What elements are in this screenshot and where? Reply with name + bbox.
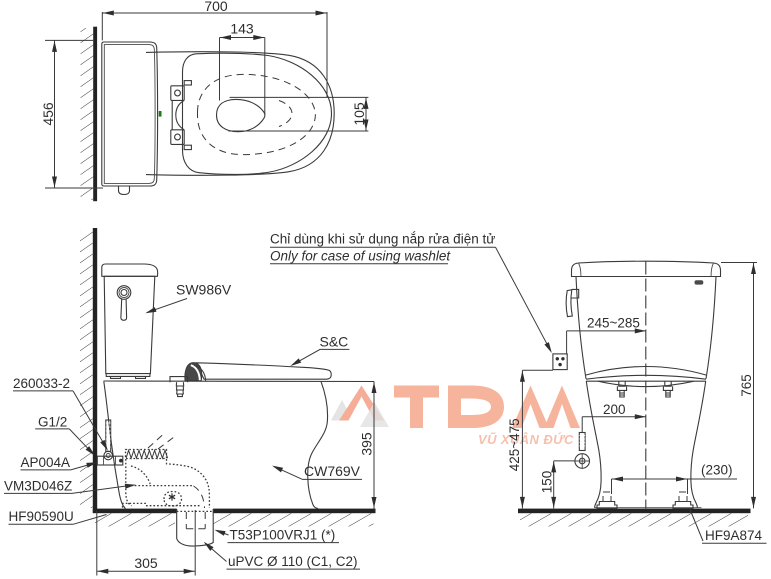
svg-text:245~285: 245~285 — [587, 316, 640, 331]
svg-text:Chỉ dùng khi sử dụng nắp rửa đ: Chỉ dùng khi sử dụng nắp rửa điện tử — [270, 232, 495, 247]
svg-text:395: 395 — [359, 432, 375, 456]
svg-text:150: 150 — [540, 471, 555, 494]
svg-text:425~475: 425~475 — [507, 418, 522, 471]
svg-text:105: 105 — [351, 102, 367, 126]
svg-text:200: 200 — [603, 402, 626, 417]
svg-text:G1/2: G1/2 — [38, 414, 67, 429]
svg-text:T53P100VRJ1 (*): T53P100VRJ1 (*) — [230, 528, 336, 543]
svg-text:VM3D046Z: VM3D046Z — [4, 478, 72, 493]
svg-text:SW986V: SW986V — [176, 282, 232, 298]
svg-text:HF9A874: HF9A874 — [705, 528, 763, 543]
svg-text:S&C: S&C — [320, 334, 349, 350]
svg-text:AP004A: AP004A — [21, 455, 71, 470]
svg-text:uPVC Ø 110 (C1, C2): uPVC Ø 110 (C1, C2) — [228, 554, 358, 569]
svg-text:(230): (230) — [701, 463, 733, 478]
svg-text:765: 765 — [739, 374, 754, 397]
svg-text:260033-2: 260033-2 — [13, 376, 70, 391]
svg-text:305: 305 — [134, 555, 158, 571]
svg-text:VŨ XUÂN ĐỨC: VŨ XUÂN ĐỨC — [478, 432, 574, 447]
svg-text:456: 456 — [40, 102, 56, 126]
svg-text:Only for case of using washlet: Only for case of using washlet — [270, 249, 451, 264]
svg-text:HF90590U: HF90590U — [9, 509, 74, 524]
svg-text:700: 700 — [204, 0, 228, 14]
svg-text:143: 143 — [230, 21, 254, 37]
svg-text:CW769V: CW769V — [304, 463, 361, 479]
